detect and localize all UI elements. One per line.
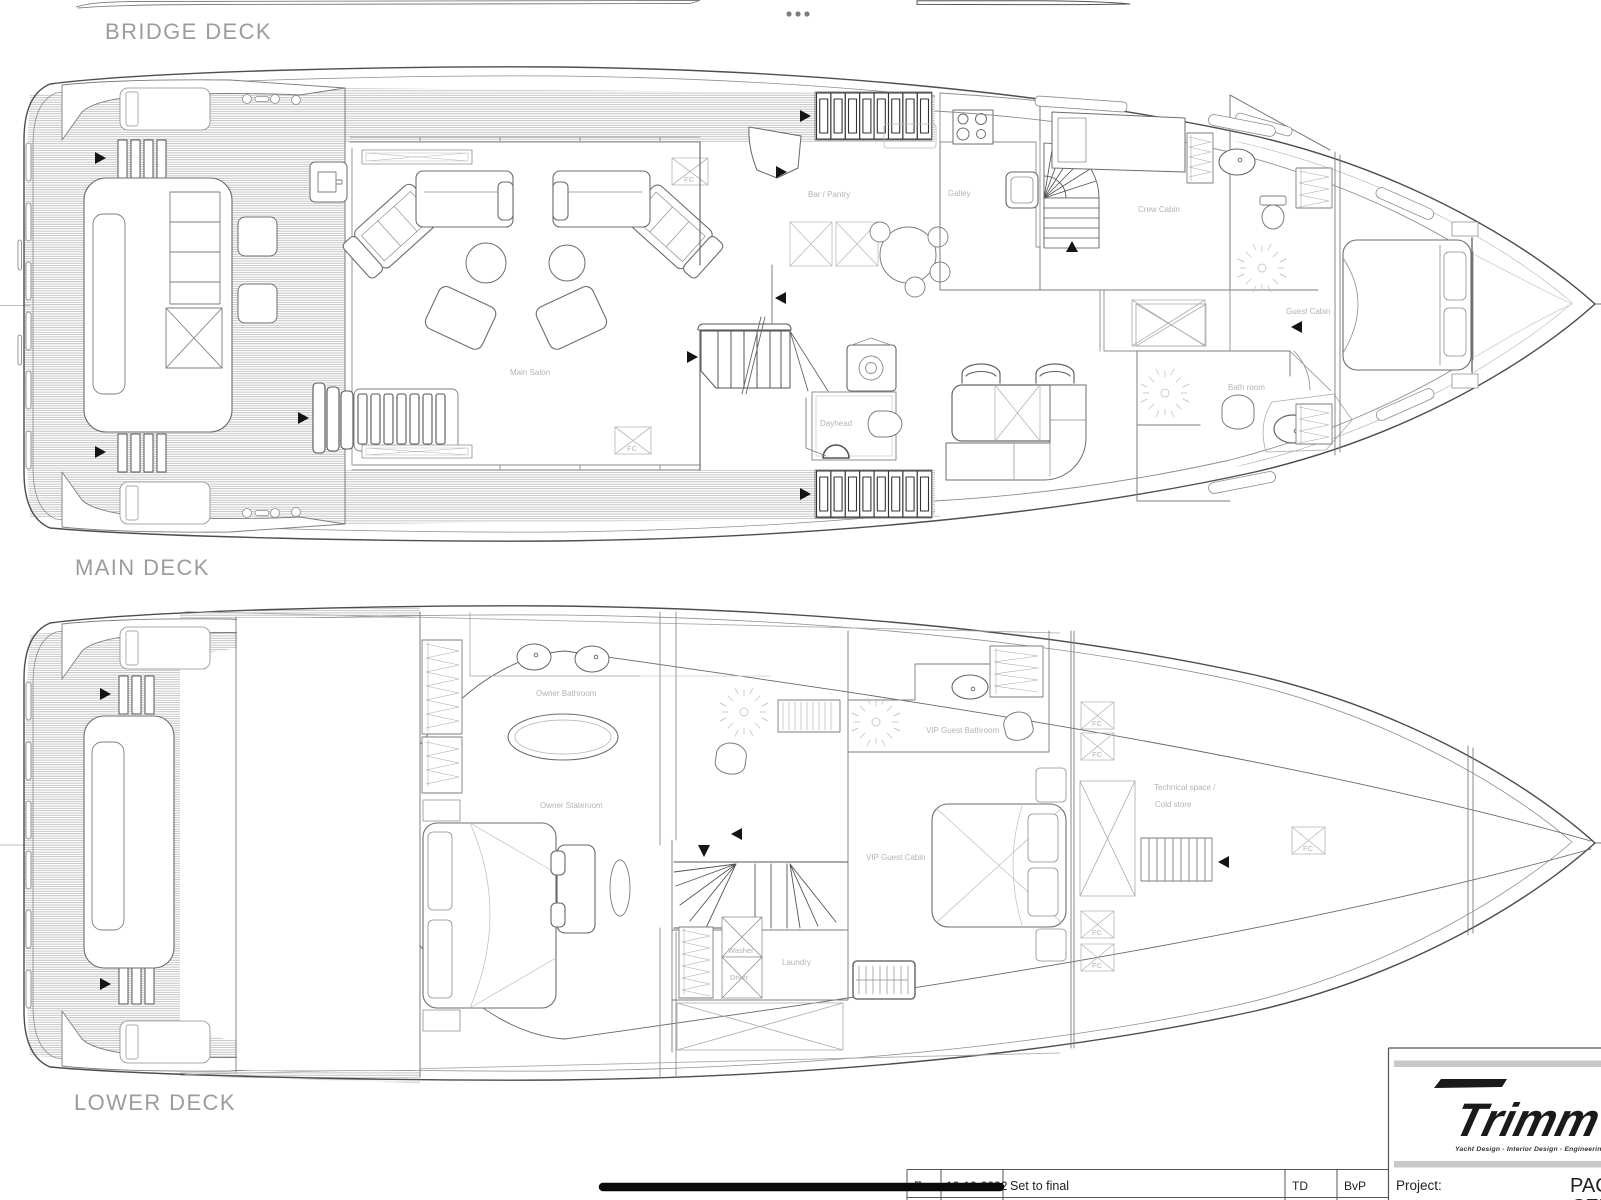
svg-text:VIP Guest Bathroom: VIP Guest Bathroom xyxy=(926,726,1000,735)
svg-text:Owner Stateroom: Owner Stateroom xyxy=(540,801,603,810)
svg-text:FC: FC xyxy=(1303,844,1314,853)
svg-text:Set to final: Set to final xyxy=(1010,1179,1069,1193)
svg-text:Galley: Galley xyxy=(948,189,971,198)
svg-text:Washer: Washer xyxy=(728,946,754,955)
svg-text:Trimm: Trimm xyxy=(1449,1095,1601,1147)
svg-text:Bar / Pantry: Bar / Pantry xyxy=(808,190,850,199)
svg-text:Laundry: Laundry xyxy=(782,958,811,967)
svg-text:FC: FC xyxy=(684,175,695,184)
svg-text:LOWER DECK: LOWER DECK xyxy=(74,1090,236,1115)
svg-text:VIP Guest Cabin: VIP Guest Cabin xyxy=(866,853,925,862)
svg-text:MAIN DECK: MAIN DECK xyxy=(75,555,210,580)
svg-text:Crew Cabin: Crew Cabin xyxy=(1138,205,1180,214)
svg-text:Yacht Design - Interior Design: Yacht Design - Interior Design - Enginee… xyxy=(1455,1146,1601,1153)
svg-text:Main Salon: Main Salon xyxy=(510,368,550,377)
svg-text:Dryer: Dryer xyxy=(730,973,749,982)
svg-text:Cold store: Cold store xyxy=(1155,800,1192,809)
svg-text:Dayhead: Dayhead xyxy=(820,419,852,428)
svg-text:TD: TD xyxy=(1292,1179,1308,1193)
svg-text:Guest Cabin: Guest Cabin xyxy=(1286,307,1330,316)
svg-text:Bath room: Bath room xyxy=(1228,383,1265,392)
svg-text:PAC: PAC xyxy=(1570,1175,1601,1197)
svg-text:FC: FC xyxy=(627,444,638,453)
svg-text:FC: FC xyxy=(1092,961,1103,970)
svg-text:BvP: BvP xyxy=(1344,1179,1366,1193)
svg-text:Project:: Project: xyxy=(1396,1178,1442,1193)
svg-text:Owner Bathroom: Owner Bathroom xyxy=(536,689,597,698)
svg-text:SEM: SEM xyxy=(1572,1196,1601,1200)
svg-text:FC: FC xyxy=(1092,928,1103,937)
svg-text:FC: FC xyxy=(1092,750,1103,759)
svg-text:FC: FC xyxy=(1092,719,1103,728)
svg-text:Technical space /: Technical space / xyxy=(1154,783,1216,792)
svg-text:BRIDGE DECK: BRIDGE DECK xyxy=(105,19,272,44)
